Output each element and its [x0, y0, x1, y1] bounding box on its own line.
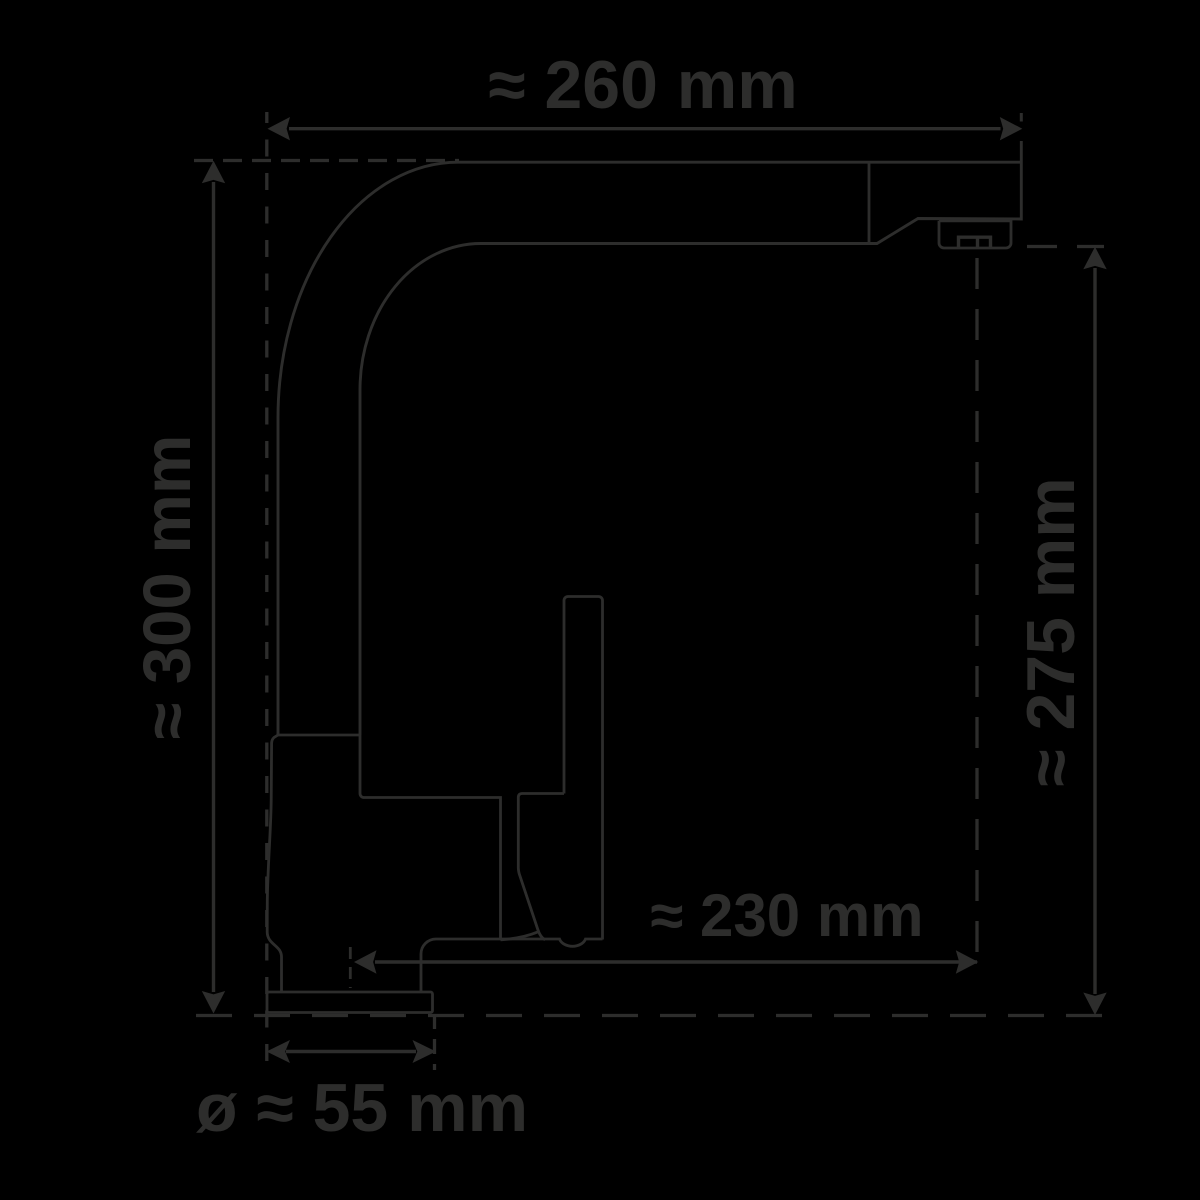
svg-text:≈ 300 mm: ≈ 300 mm	[130, 435, 205, 740]
svg-text:ø ≈ 55 mm: ø ≈ 55 mm	[196, 1070, 528, 1146]
svg-text:≈ 260 mm: ≈ 260 mm	[488, 47, 798, 123]
svg-text:≈ 275 mm: ≈ 275 mm	[1013, 477, 1089, 787]
svg-text:≈ 230 mm: ≈ 230 mm	[650, 882, 923, 949]
